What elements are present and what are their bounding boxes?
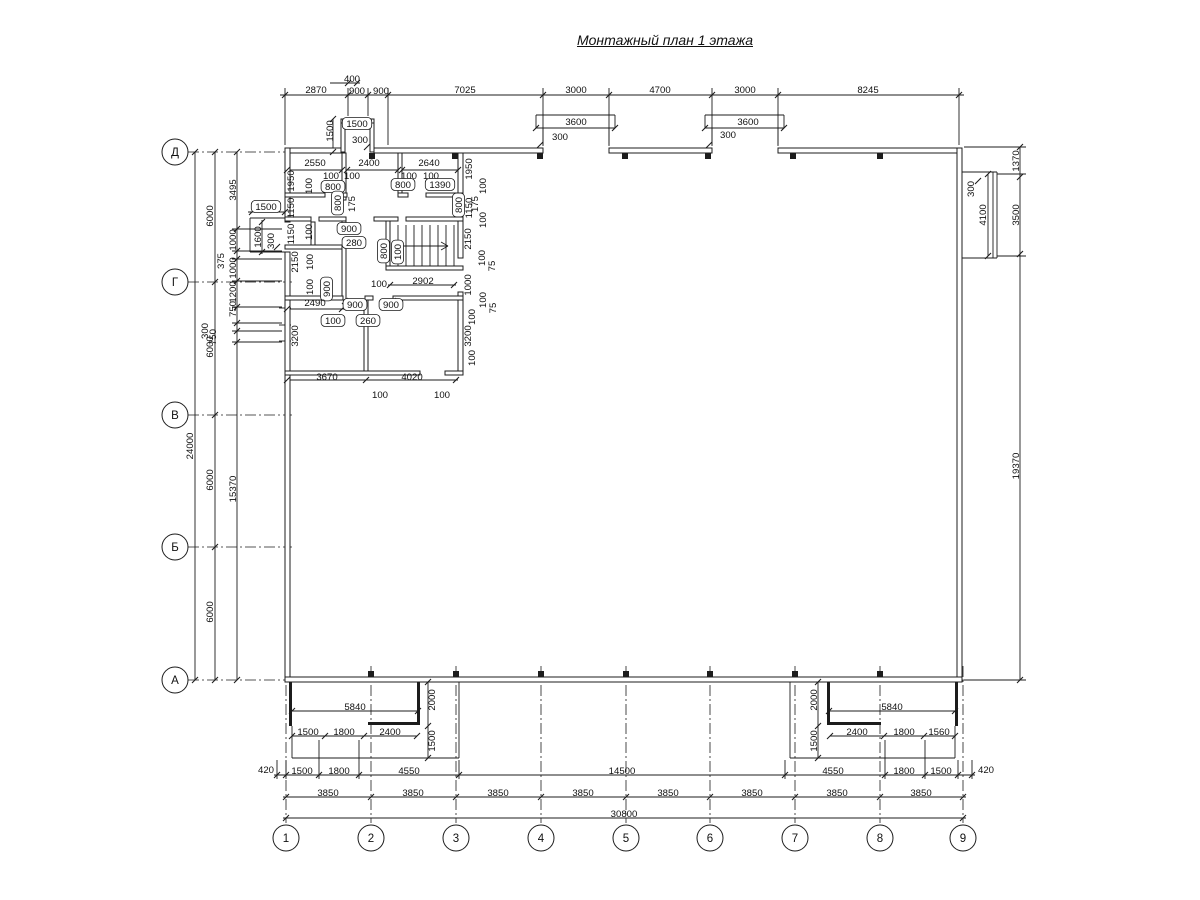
dim-tick — [706, 142, 712, 148]
dim-label-group: 2000 — [427, 689, 438, 710]
dim-label: 1500 — [930, 766, 951, 777]
dim-label: 1500 — [809, 730, 820, 751]
dim-label-group: 2902 — [412, 276, 433, 287]
column-or-rail — [955, 682, 958, 726]
column-or-rail — [877, 153, 883, 159]
dim-label: 400 — [344, 74, 360, 85]
column-or-rail — [877, 671, 883, 677]
dim-label-group: 280 — [342, 237, 366, 250]
dim-label-group: 2400 — [379, 727, 400, 738]
col-axis-4-label: 4 — [538, 833, 545, 845]
dim-label: 1800 — [328, 766, 349, 777]
wall — [285, 677, 962, 682]
dim-label: 300 — [352, 135, 368, 146]
dim-label: 1200 — [228, 281, 239, 302]
dim-label-group: 300 — [552, 132, 568, 143]
dim-label-group: 2000 — [809, 689, 820, 710]
dim-label-group: 100 — [305, 254, 316, 270]
dim-label-group: 1950 — [464, 158, 475, 179]
wall — [406, 217, 463, 221]
wall — [398, 193, 408, 197]
dim-label: 900 — [349, 86, 365, 97]
dim-label: 2640 — [418, 158, 439, 169]
dim-label-group: 1500 — [291, 766, 312, 777]
dim-label-group: 5840 — [881, 702, 902, 713]
wall — [285, 252, 290, 682]
dim-label: 4700 — [649, 85, 670, 96]
dim-label-group: 4020 — [401, 372, 422, 383]
dim-label-group: 3850 — [657, 788, 678, 799]
dim-label-group: 3000 — [734, 85, 755, 96]
dim-label: 300 — [720, 130, 736, 141]
column-or-rail — [417, 682, 420, 725]
dim-label-group: 800 — [378, 239, 391, 263]
dim-label: 30800 — [611, 809, 638, 820]
dim-label: 1600 — [253, 226, 264, 247]
dim-label-group: 7025 — [454, 85, 475, 96]
dim-label: 800 — [454, 197, 465, 213]
dim-label: 900 — [341, 224, 357, 235]
dim-label-group: 6000 — [205, 336, 216, 357]
dim-label: 175 — [470, 196, 481, 212]
row-axis-Д-label: Д — [171, 147, 179, 159]
dim-label-group: 2400 — [846, 727, 867, 738]
dim-label-group: 420 — [258, 765, 274, 776]
column-or-rail — [368, 671, 374, 677]
dim-label: 2490 — [304, 298, 325, 309]
dim-label: 1950 — [286, 170, 297, 191]
dim-label: 375 — [216, 253, 227, 269]
dim-label-group: 4550 — [398, 766, 419, 777]
wall — [445, 371, 463, 375]
dim-label-group: 100 — [467, 309, 478, 325]
dim-label-group: 75 — [488, 303, 499, 314]
dim-label: 2150 — [290, 251, 301, 272]
column-or-rail — [453, 671, 459, 677]
dim-label: 175 — [347, 196, 358, 212]
wall — [957, 148, 962, 682]
dim-label: 6000 — [205, 336, 216, 357]
dim-label-group: 8245 — [857, 85, 878, 96]
dim-label-group: 100 — [467, 350, 478, 366]
dim-label-group: 1370 — [1011, 150, 1022, 171]
dim-label: 3600 — [565, 117, 586, 128]
dim-label: 100 — [344, 171, 360, 182]
dim-label-group: 30800 — [611, 809, 638, 820]
dim-label-group: 6000 — [205, 601, 216, 622]
dim-label: 420 — [258, 765, 274, 776]
dim-label: 900 — [322, 281, 333, 297]
dim-label-group: 1500 — [251, 201, 280, 214]
dim-label-group: 175 — [470, 196, 481, 212]
dim-label-group: 1000 — [463, 274, 474, 295]
dim-label-group: 5840 — [344, 702, 365, 713]
dim-label-group: 900 — [379, 299, 403, 312]
dim-label: 75 — [488, 303, 499, 314]
column-or-rail — [289, 682, 292, 726]
dim-label: 1500 — [325, 120, 336, 141]
dim-label-group: 4100 — [978, 204, 989, 225]
dim-label: 300 — [552, 132, 568, 143]
dim-label: 1800 — [893, 766, 914, 777]
dim-label: 8245 — [857, 85, 878, 96]
dim-label: 100 — [434, 390, 450, 401]
dim-label-group: 2400 — [358, 158, 379, 169]
dim-label: 800 — [379, 243, 390, 259]
col-axis-8-label: 8 — [877, 833, 883, 845]
column-or-rail — [827, 682, 830, 725]
col-axis-7-label: 7 — [792, 833, 798, 845]
dim-label-group: 100 — [392, 240, 405, 264]
wall — [319, 217, 346, 221]
dim-label: 100 — [304, 178, 315, 194]
dim-label-group: 3850 — [910, 788, 931, 799]
wall — [609, 148, 712, 153]
dim-label-group: 1800 — [328, 766, 349, 777]
row-axis-А-label: А — [171, 675, 179, 687]
dim-label-group: 100 — [304, 224, 315, 240]
dim-label: 3600 — [737, 117, 758, 128]
dim-label: 100 — [467, 309, 478, 325]
dim-label-group: 3000 — [565, 85, 586, 96]
dim-label-group: 1800 — [893, 766, 914, 777]
dim-label: 1800 — [333, 727, 354, 738]
dim-label: 750 — [228, 301, 239, 317]
dim-label-group: 3850 — [572, 788, 593, 799]
dim-label-group: 1560 — [928, 727, 949, 738]
wall — [364, 300, 368, 375]
dim-label-group: 900 — [343, 299, 367, 312]
wall — [342, 245, 346, 300]
dim-label-group: 6000 — [205, 469, 216, 490]
dim-label-group: 24000 — [185, 433, 196, 460]
floor-plan-canvas: 2870400900900702530004700300082453600300… — [0, 0, 1200, 900]
dim-label-group: 900 — [373, 86, 389, 97]
column-or-rail — [538, 671, 544, 677]
dim-label-group: 900 — [349, 86, 365, 97]
dim-label-group: 1800 — [333, 727, 354, 738]
dim-label: 100 — [371, 279, 387, 290]
dim-label-group: 1150 — [286, 224, 297, 245]
dim-label: 3850 — [487, 788, 508, 799]
dim-label-group: 100 — [434, 390, 450, 401]
dim-label-group: 1500 — [297, 727, 318, 738]
dim-label: 2400 — [358, 158, 379, 169]
wall — [285, 245, 342, 249]
dim-label-group: 100 — [478, 178, 489, 194]
dim-label-group: 1800 — [893, 727, 914, 738]
dim-label-group: 75 — [487, 261, 498, 272]
dim-label-group: 1390 — [425, 179, 454, 192]
dim-label-group: 1500 — [809, 730, 820, 751]
dim-label-group: 3850 — [741, 788, 762, 799]
column-or-rail — [707, 671, 713, 677]
dim-label-group: 375 — [216, 253, 227, 269]
dim-label: 1500 — [346, 119, 367, 130]
dim-label: 2000 — [809, 689, 820, 710]
dim-label: 3000 — [565, 85, 586, 96]
dim-label: 4550 — [398, 766, 419, 777]
dim-label-group: 3600 — [565, 117, 586, 128]
column-or-rail — [623, 671, 629, 677]
dim-label-group: 3600 — [737, 117, 758, 128]
dim-label-group: 800 — [453, 193, 466, 217]
dim-label-group: 300 — [720, 130, 736, 141]
dim-label: 1500 — [255, 202, 276, 213]
dim-label: 300 — [266, 233, 277, 249]
dim-label-group: 1150 — [286, 198, 297, 219]
col-axis-2-label: 2 — [368, 833, 374, 845]
dim-label: 6000 — [205, 601, 216, 622]
dim-label: 3200 — [290, 325, 301, 346]
column-or-rail — [537, 153, 543, 159]
dim-label: 19370 — [1011, 453, 1022, 480]
dim-label-group: 100 — [372, 390, 388, 401]
dim-label: 1000 — [463, 274, 474, 295]
dim-label: 3670 — [316, 372, 337, 383]
dim-label-group: 1500 — [325, 120, 336, 141]
dim-label: 1500 — [297, 727, 318, 738]
dim-label-group: 800 — [391, 179, 415, 192]
wall — [365, 296, 373, 300]
dim-label: 100 — [325, 316, 341, 327]
dim-label: 100 — [304, 224, 315, 240]
dim-label-group: 2150 — [463, 228, 474, 249]
dim-label: 6000 — [205, 469, 216, 490]
dim-label: 2000 — [427, 689, 438, 710]
dim-label-group: 1500 — [342, 118, 371, 131]
dim-label-group: 2870 — [305, 85, 326, 96]
dim-label-group: 15370 — [228, 476, 239, 503]
drawing-sheet: Монтажный план 1 этажа 28704009009007025… — [0, 0, 1200, 900]
col-axis-6-label: 6 — [707, 833, 713, 845]
dim-label-group: 14500 — [609, 766, 636, 777]
dim-label: 800 — [333, 195, 344, 211]
dim-label: 260 — [360, 316, 376, 327]
dim-label: 3850 — [572, 788, 593, 799]
dim-label: 100 — [393, 244, 404, 260]
dim-label: 1000 — [228, 257, 239, 278]
dim-label-group: 4700 — [649, 85, 670, 96]
dim-label: 3000 — [734, 85, 755, 96]
dim-label-group: 3200 — [290, 325, 301, 346]
wall — [778, 148, 962, 153]
dim-label-group: 2150 — [290, 251, 301, 272]
dim-label: 3495 — [228, 179, 239, 200]
thin-line — [441, 242, 448, 246]
dim-label: 3200 — [463, 325, 474, 346]
dim-label-group: 3850 — [826, 788, 847, 799]
dim-tick — [537, 142, 543, 148]
wall — [374, 148, 543, 153]
dim-label-group: 175 — [347, 196, 358, 212]
wall — [285, 371, 420, 375]
dim-label-group: 800 — [332, 191, 345, 215]
dim-label-group: 900 — [337, 223, 361, 236]
dim-label: 3850 — [741, 788, 762, 799]
dim-label: 300 — [966, 181, 977, 197]
dim-label: 1950 — [464, 158, 475, 179]
dim-label: 2400 — [379, 727, 400, 738]
dim-label: 4020 — [401, 372, 422, 383]
wall — [386, 266, 463, 270]
column-or-rail — [792, 671, 798, 677]
dim-label: 3850 — [910, 788, 931, 799]
row-axis-В-label: В — [171, 410, 179, 422]
dim-label-group: 1500 — [427, 730, 438, 751]
dim-label: 100 — [372, 390, 388, 401]
row-axis-Г-label: Г — [172, 277, 179, 289]
dim-label: 5840 — [881, 702, 902, 713]
dim-label-group: 1000 — [228, 229, 239, 250]
dim-label: 3850 — [402, 788, 423, 799]
dim-label-group: 300 — [266, 233, 277, 249]
dim-label-group: 3850 — [487, 788, 508, 799]
dim-label: 1500 — [291, 766, 312, 777]
dim-label-group: 420 — [978, 765, 994, 776]
dim-label-group: 400 — [344, 74, 360, 85]
dim-label: 100 — [478, 178, 489, 194]
dim-label: 1150 — [286, 224, 297, 245]
dim-label-group: 1950 — [286, 170, 297, 191]
dim-label-group: 1500 — [930, 766, 951, 777]
dim-label-group: 3850 — [402, 788, 423, 799]
dim-label-group: 100 — [344, 171, 360, 182]
dim-label-group: 260 — [356, 315, 380, 328]
dim-label: 6000 — [205, 205, 216, 226]
dim-label: 100 — [305, 279, 316, 295]
row-axis-Б-label: Б — [171, 542, 179, 554]
dim-label: 2150 — [463, 228, 474, 249]
dim-label-group: 100 — [371, 279, 387, 290]
dim-label: 1560 — [928, 727, 949, 738]
dim-label: 100 — [478, 212, 489, 228]
dim-label-group: 750 — [228, 301, 239, 317]
dim-label-group: 1600 — [253, 226, 264, 247]
column-or-rail — [622, 153, 628, 159]
dim-label: 280 — [346, 238, 362, 249]
wall — [393, 296, 463, 300]
dim-label: 3850 — [826, 788, 847, 799]
dim-label: 4550 — [822, 766, 843, 777]
dim-label: 3850 — [657, 788, 678, 799]
dim-label: 900 — [383, 300, 399, 311]
dim-label: 14500 — [609, 766, 636, 777]
dim-label: 1390 — [429, 180, 450, 191]
dim-label-group: 3495 — [228, 179, 239, 200]
dim-label-group: 3500 — [1011, 204, 1022, 225]
dim-label-group: 3670 — [316, 372, 337, 383]
dim-label-group: 3200 — [463, 325, 474, 346]
dim-label-group: 1200 — [228, 281, 239, 302]
dim-label: 1500 — [427, 730, 438, 751]
dim-label-group: 100 — [304, 178, 315, 194]
dim-label: 100 — [305, 254, 316, 270]
dim-label-group: 300 — [352, 135, 368, 146]
column-or-rail — [368, 722, 420, 725]
dim-label: 7025 — [454, 85, 475, 96]
dim-label-group: 2550 — [304, 158, 325, 169]
dim-label: 3500 — [1011, 204, 1022, 225]
dim-label: 900 — [347, 300, 363, 311]
dim-label: 2902 — [412, 276, 433, 287]
dim-label: 75 — [487, 261, 498, 272]
dim-label-group: 4550 — [822, 766, 843, 777]
thin-line — [441, 246, 448, 250]
dim-label: 1150 — [286, 198, 297, 219]
dim-label: 1800 — [893, 727, 914, 738]
dim-label-group: 100 — [478, 212, 489, 228]
dim-label: 2870 — [305, 85, 326, 96]
dim-label: 900 — [373, 86, 389, 97]
column-or-rail — [829, 722, 881, 725]
dim-label: 100 — [467, 350, 478, 366]
col-axis-9-label: 9 — [960, 833, 966, 845]
dim-label: 2550 — [304, 158, 325, 169]
col-axis-3-label: 3 — [453, 833, 459, 845]
dim-label: 3850 — [317, 788, 338, 799]
col-axis-1-label: 1 — [283, 833, 289, 845]
dim-label-group: 19370 — [1011, 453, 1022, 480]
dim-label: 15370 — [228, 476, 239, 503]
dim-label-group: 6000 — [205, 205, 216, 226]
dim-label-group: 100 — [321, 315, 345, 328]
dim-label: 24000 — [185, 433, 196, 460]
dim-label: 4100 — [978, 204, 989, 225]
dim-label-group: 1000 — [228, 257, 239, 278]
dim-label: 800 — [395, 180, 411, 191]
column-or-rail — [452, 153, 458, 159]
dim-label: 420 — [978, 765, 994, 776]
dim-label-group: 2490 — [304, 298, 325, 309]
column-or-rail — [790, 153, 796, 159]
dim-label: 1370 — [1011, 150, 1022, 171]
dim-label-group: 2640 — [418, 158, 439, 169]
dim-label-group: 300 — [966, 181, 977, 197]
dim-label: 5840 — [344, 702, 365, 713]
dim-label: 1000 — [228, 229, 239, 250]
col-axis-5-label: 5 — [623, 833, 629, 845]
dim-label: 2400 — [846, 727, 867, 738]
dim-label-group: 3850 — [317, 788, 338, 799]
wall — [374, 217, 398, 221]
dim-label-group: 100 — [305, 279, 316, 295]
column-or-rail — [705, 153, 711, 159]
